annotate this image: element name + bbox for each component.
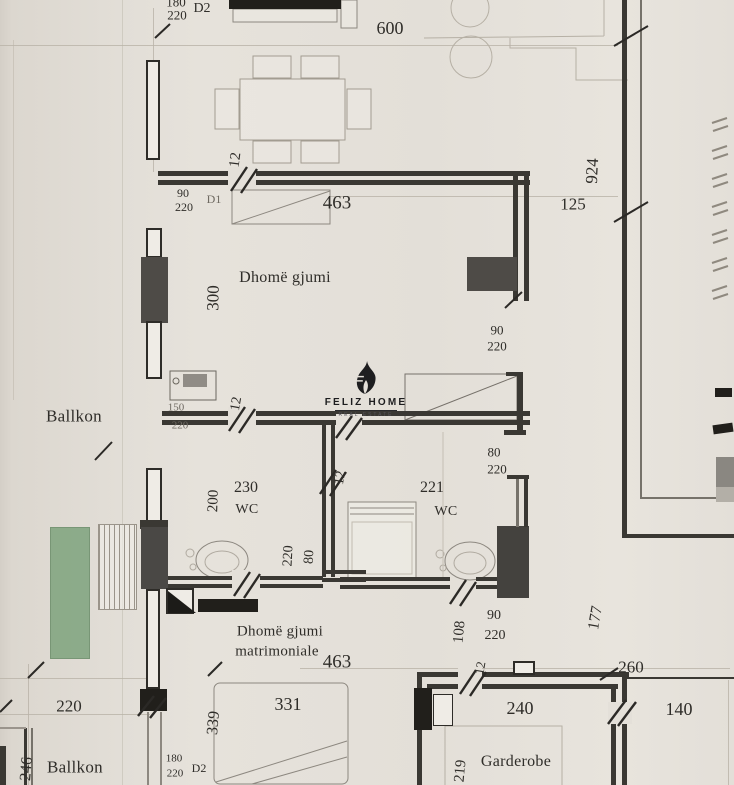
- window-leaf-top: [232, 190, 330, 224]
- column-bedroom: [467, 257, 517, 291]
- dim-221: 221: [420, 480, 444, 496]
- dim-200: 200: [206, 489, 222, 512]
- dim-150-balcony-door: 150: [168, 403, 185, 414]
- wall-top-inner: [158, 180, 530, 185]
- room-label-wc-right: WC: [434, 505, 457, 519]
- dim-220-right-door: 220: [487, 340, 507, 353]
- dim-90-bottom-door: 90: [487, 609, 501, 623]
- wall-gard-top-inner: [427, 684, 618, 689]
- wall-mid-cap-a: [322, 570, 366, 574]
- right-grey-block-2: [716, 487, 734, 502]
- wall-right-edge: [622, 0, 627, 537]
- dim-220-bottom-left: 220: [56, 698, 82, 715]
- right-black-mark-2: [712, 423, 733, 435]
- kitchen-counter: [424, 0, 628, 80]
- door-d2-tag-bottom: D2: [192, 762, 207, 774]
- dim-line-924: [640, 0, 642, 498]
- radiator: [98, 524, 137, 610]
- wall-wcR-bottom-a: [340, 577, 450, 581]
- dim-12-mid-wall: 12: [333, 470, 349, 486]
- chair: [301, 56, 339, 78]
- room-label-matrimoniale-line2: matrimoniale: [235, 645, 319, 660]
- wall-break: [608, 702, 632, 724]
- wall-bl-horiz: [0, 727, 26, 729]
- dim-12-top-wall: 12: [228, 152, 245, 169]
- scan-crease: [122, 0, 123, 785]
- wall-wcR-above-a: [516, 477, 519, 527]
- dim-220-right-door-2: 220: [487, 463, 507, 476]
- dim-80-wc-door: 80: [303, 550, 318, 565]
- right-black-mark-1: [715, 388, 732, 397]
- gard-white-box: [433, 694, 453, 726]
- watermark-tagline: REAL ESTATE: [339, 412, 394, 418]
- dim-339: 339: [205, 710, 223, 735]
- dim-180-d2-bottom: 180: [166, 754, 183, 765]
- dim-line-right-vert: [728, 680, 729, 785]
- dim-463-bottom: 463: [323, 653, 352, 672]
- room-label-wc-left: WC: [235, 503, 258, 517]
- stove-burner: [451, 0, 489, 27]
- feliz-home-logo-icon: [353, 361, 379, 395]
- wall-t-cap-top: [506, 372, 520, 376]
- dim-240: 240: [507, 699, 534, 717]
- wall-left-tail-b: [160, 712, 162, 785]
- dim-12-balcony-wall: 12: [229, 396, 245, 412]
- window-left-5: [146, 589, 160, 689]
- dim-line-left-horiz: [0, 678, 160, 679]
- column-wcR: [497, 526, 529, 598]
- column-left-1: [141, 257, 168, 323]
- dim-924: 924: [583, 158, 601, 184]
- washing-machine: [170, 371, 216, 400]
- room-label-garderobe: Garderobe: [481, 754, 551, 770]
- shower-corner-box: [166, 588, 194, 614]
- chair: [253, 56, 291, 78]
- door-d2-tag: D2: [193, 2, 210, 16]
- dining-table: [240, 79, 345, 140]
- chair: [253, 141, 291, 163]
- column-left-2: [141, 527, 168, 589]
- door-d1-tag: D1: [207, 193, 222, 205]
- dim-140: 140: [666, 700, 693, 718]
- wall-top-outer: [158, 171, 530, 176]
- chair: [215, 89, 239, 129]
- dim-12-garderobe: 12: [472, 660, 487, 675]
- chair: [301, 141, 339, 163]
- dim-door-d1-height: 220: [175, 201, 193, 213]
- wall-break: [228, 167, 256, 189]
- balcony-planter: [50, 527, 90, 659]
- room-label-ballkon: Ballkon: [46, 408, 102, 425]
- wall-left-cap2: [140, 689, 167, 711]
- wall-wcR-above-cap: [507, 475, 529, 479]
- floor-plan: 600180220D21290220D1463924125Dhomë gjumi…: [0, 0, 734, 785]
- wall-t-cap-bottom: [504, 430, 526, 435]
- wall-bedroom-right-inner: [524, 171, 529, 301]
- dim-230: 230: [234, 480, 258, 496]
- break-marks: [138, 167, 636, 726]
- dim-246: 246: [18, 756, 36, 781]
- dim-line-600: [0, 45, 618, 46]
- window-left-4: [146, 468, 162, 522]
- dim-177: 177: [586, 605, 606, 631]
- right-margin-marks: [712, 118, 728, 299]
- wall-sofa-top: [229, 0, 341, 9]
- wall-mid-inner: [331, 424, 335, 577]
- wall-wcR-above-b: [524, 477, 528, 527]
- watermark-name: FELIZ HOME: [325, 397, 408, 408]
- wall-gard-right-outer: [622, 677, 627, 785]
- window-left-3: [146, 321, 162, 379]
- stove-burner: [450, 36, 492, 78]
- dim-219: 219: [453, 759, 470, 783]
- room-label-dhome-gjumi: Dhomë gjumi: [239, 270, 331, 286]
- dim-door-d1-width: 90: [177, 187, 189, 199]
- chair: [347, 89, 371, 129]
- dim-600: 600: [377, 19, 404, 37]
- wall-wcR-bottom-c: [476, 577, 498, 581]
- dim-331: 331: [275, 695, 302, 713]
- watermark: FELIZ HOME REAL ESTATE: [330, 361, 402, 418]
- wall-wcR-bottom-d: [476, 585, 498, 589]
- dim-220-d2-bottom: 220: [167, 769, 184, 780]
- dim-220-balcony-door: 220: [172, 421, 189, 432]
- window-left-1: [146, 60, 160, 160]
- wall-wcR-bottom-b: [340, 585, 450, 589]
- wall-break: [232, 570, 260, 594]
- right-grey-block-1: [716, 457, 734, 487]
- wall-right-677: [627, 677, 734, 679]
- dim-260: 260: [618, 659, 644, 676]
- scan-edge: [13, 40, 14, 400]
- sofa-side: [341, 0, 357, 28]
- room-label-matrimoniale-line1: Dhomë gjumi: [237, 625, 323, 640]
- wall-bl-edge: [0, 746, 6, 785]
- wall-bedroom2-top: [198, 599, 258, 612]
- dim-door-d2-height: 220: [167, 9, 187, 22]
- room-label-ballkon-bottom: Ballkon: [47, 759, 103, 776]
- shower: [348, 502, 416, 578]
- dim-90-right-door: 90: [491, 324, 504, 337]
- wall-mid-outer: [322, 424, 326, 577]
- window-left-2: [146, 228, 162, 258]
- sink-right: [445, 542, 495, 580]
- dim-300: 300: [204, 285, 221, 311]
- dim-80-right-door: 80: [488, 446, 501, 459]
- watermark-divider: [335, 410, 397, 411]
- dim-125: 125: [560, 196, 586, 213]
- dim-463-top: 463: [323, 194, 352, 213]
- wall-left-tail-a: [147, 712, 149, 785]
- dim-220-wc-door: 220: [281, 545, 296, 567]
- wall-notch-gard: [513, 661, 535, 675]
- dim-108: 108: [452, 620, 469, 644]
- column-gard: [414, 688, 432, 730]
- wall-right-edge-bend: [622, 534, 734, 538]
- sofa: [233, 9, 337, 22]
- dim-220-bottom-door: 220: [485, 629, 506, 643]
